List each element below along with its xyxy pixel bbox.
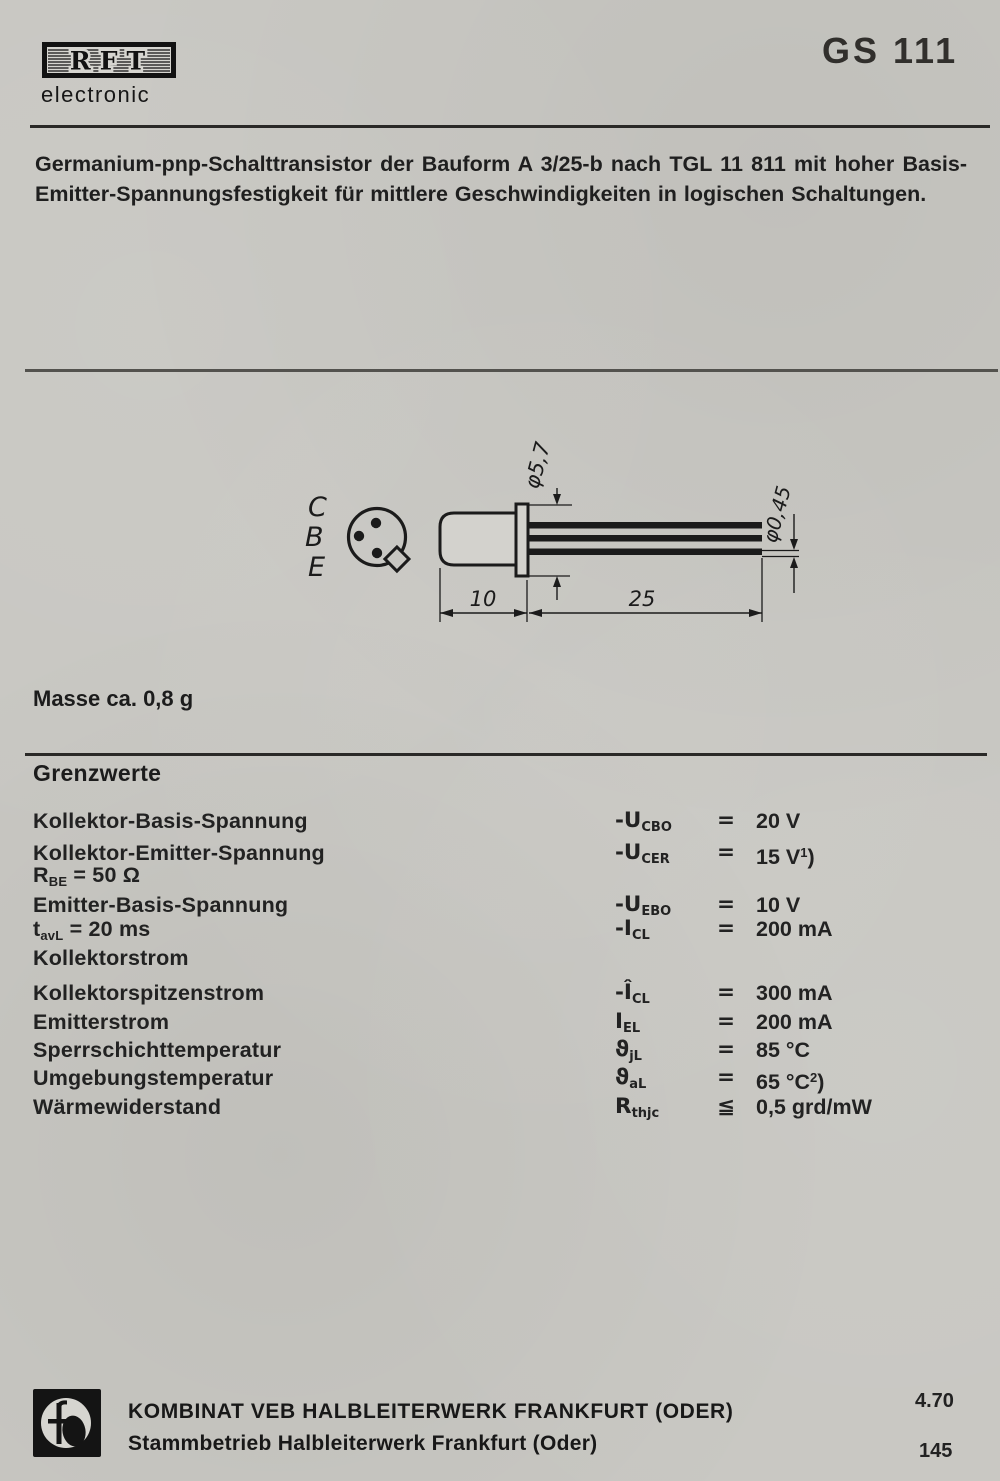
dim-lead-length-label: 25 <box>629 587 656 611</box>
description-line: Germanium-pnp-Schalttransistor der Baufo… <box>35 149 967 179</box>
limit-value: 200 mA <box>756 915 970 943</box>
part-number: GS 111 <box>822 30 958 72</box>
limit-value: 200 mA <box>756 1008 970 1036</box>
limit-label: Emitterstrom <box>33 1008 615 1036</box>
dim-lead-diameter-label: φ0,45 <box>758 483 796 545</box>
limit-symbol <box>615 861 717 889</box>
description-line: Emitter-Spannungsfestigkeit für mittlere… <box>35 179 967 209</box>
limit-value <box>756 861 970 889</box>
datasheet-page: RFT electronic GS 111 Germanium-pnp-Scha… <box>0 0 1000 1481</box>
section-rule-top <box>25 369 998 372</box>
dim-lead-diameter: φ0,45 <box>758 483 799 593</box>
limit-label: Wärmewiderstand <box>33 1093 615 1121</box>
limit-value: 20 V <box>756 807 970 835</box>
limit-value: 85 °C <box>756 1036 970 1064</box>
limit-label: Kollektorspitzenstrom <box>33 979 615 1007</box>
flange <box>516 504 528 576</box>
dim-body-length-label: 10 <box>470 587 497 611</box>
rft-logo: RFT <box>42 42 176 78</box>
pin-label-base: B <box>305 522 324 553</box>
section-rule-limits <box>25 753 987 756</box>
limit-symbol: ϑjL <box>615 1036 717 1064</box>
limit-value: 300 mA <box>756 979 970 1007</box>
table-row: RBE = 50 Ω <box>33 861 970 889</box>
limit-value <box>756 944 970 972</box>
limits-table: Kollektor-Basis-Spannung -UCBO = 20 V Ko… <box>33 807 970 1121</box>
pin-view: C B E <box>305 492 409 583</box>
table-row: tavL = 20 ms -ICL = 200 mA <box>33 915 970 943</box>
limit-label: Kollektorstrom <box>33 944 615 972</box>
limit-symbol <box>615 944 717 972</box>
limit-symbol: ϑaL <box>615 1064 717 1092</box>
limit-symbol: -ICL <box>615 915 717 943</box>
limit-label: RBE = 50 Ω <box>33 861 615 889</box>
limit-value: 65 °C2) <box>756 1064 970 1092</box>
limit-sign: = <box>717 1064 756 1092</box>
limit-symbol: IEL <box>615 1008 717 1036</box>
table-row: Emitterstrom IEL = 200 mA <box>33 1008 970 1036</box>
limit-sign: = <box>717 915 756 943</box>
dim-flange-diameter-label: φ5,7 <box>520 439 556 491</box>
package-side-view <box>440 504 762 576</box>
lead-base <box>528 535 762 542</box>
pin-label-collector: C <box>308 492 327 523</box>
lead-collector <box>528 522 762 529</box>
pin-label-emitter: E <box>308 552 325 583</box>
mass-note: Masse ca. 0,8 g <box>33 686 193 712</box>
limit-value: 0,5 grd/mW <box>756 1093 970 1121</box>
limit-sign: ≦ <box>717 1093 756 1121</box>
pin-dot-base <box>354 531 364 541</box>
dim-lead-length: 25 <box>529 558 762 622</box>
package-outline-diagram: C B E φ5,7 <box>280 428 840 668</box>
limit-sign: = <box>717 979 756 1007</box>
limits-title: Grenzwerte <box>33 760 161 787</box>
date-code: 4.70 <box>915 1390 954 1413</box>
table-row: Kollektor-Basis-Spannung -UCBO = 20 V <box>33 807 970 835</box>
pin-dot-emitter <box>372 548 382 558</box>
limit-sign: = <box>717 1036 756 1064</box>
header-rule <box>30 125 990 128</box>
limit-symbol: -UCBO <box>615 807 717 835</box>
hfo-logo <box>33 1389 101 1457</box>
table-row: Umgebungstemperatur ϑaL = 65 °C2) <box>33 1064 970 1092</box>
limit-sign <box>717 944 756 972</box>
limit-label: tavL = 20 ms <box>33 915 615 943</box>
table-row: Sperrschichttemperatur ϑjL = 85 °C <box>33 1036 970 1064</box>
limit-label: Umgebungstemperatur <box>33 1064 615 1092</box>
plant-name: Stammbetrieb Halbleiterwerk Frankfurt (O… <box>128 1432 597 1456</box>
limit-symbol: Rthjc <box>615 1093 717 1121</box>
table-row: Kollektorspitzenstrom -ÎCL = 300 mA <box>33 979 970 1007</box>
table-row: Wärmewiderstand Rthjc ≦ 0,5 grd/mW <box>33 1093 970 1121</box>
limit-label: Kollektor-Basis-Spannung <box>33 807 615 835</box>
company-name: KOMBINAT VEB HALBLEITERWERK FRANKFURT (O… <box>128 1400 733 1424</box>
description-paragraph: Germanium-pnp-Schalttransistor der Baufo… <box>35 149 967 209</box>
limit-sign: = <box>717 1008 756 1036</box>
limit-sign: = <box>717 807 756 835</box>
limit-sign <box>717 861 756 889</box>
dim-body-length: 10 <box>440 568 527 622</box>
rft-logo-text: RFT <box>70 47 154 76</box>
table-row: Kollektorstrom <box>33 944 970 972</box>
transistor-body <box>440 513 517 565</box>
limit-label: Sperrschichttemperatur <box>33 1036 615 1064</box>
lead-emitter <box>528 549 762 556</box>
index-tab <box>385 547 409 571</box>
page-number: 145 <box>919 1440 952 1463</box>
pin-dot-collector <box>371 518 381 528</box>
limit-symbol: -ÎCL <box>615 979 717 1007</box>
brand-subtitle: electronic <box>41 82 150 108</box>
